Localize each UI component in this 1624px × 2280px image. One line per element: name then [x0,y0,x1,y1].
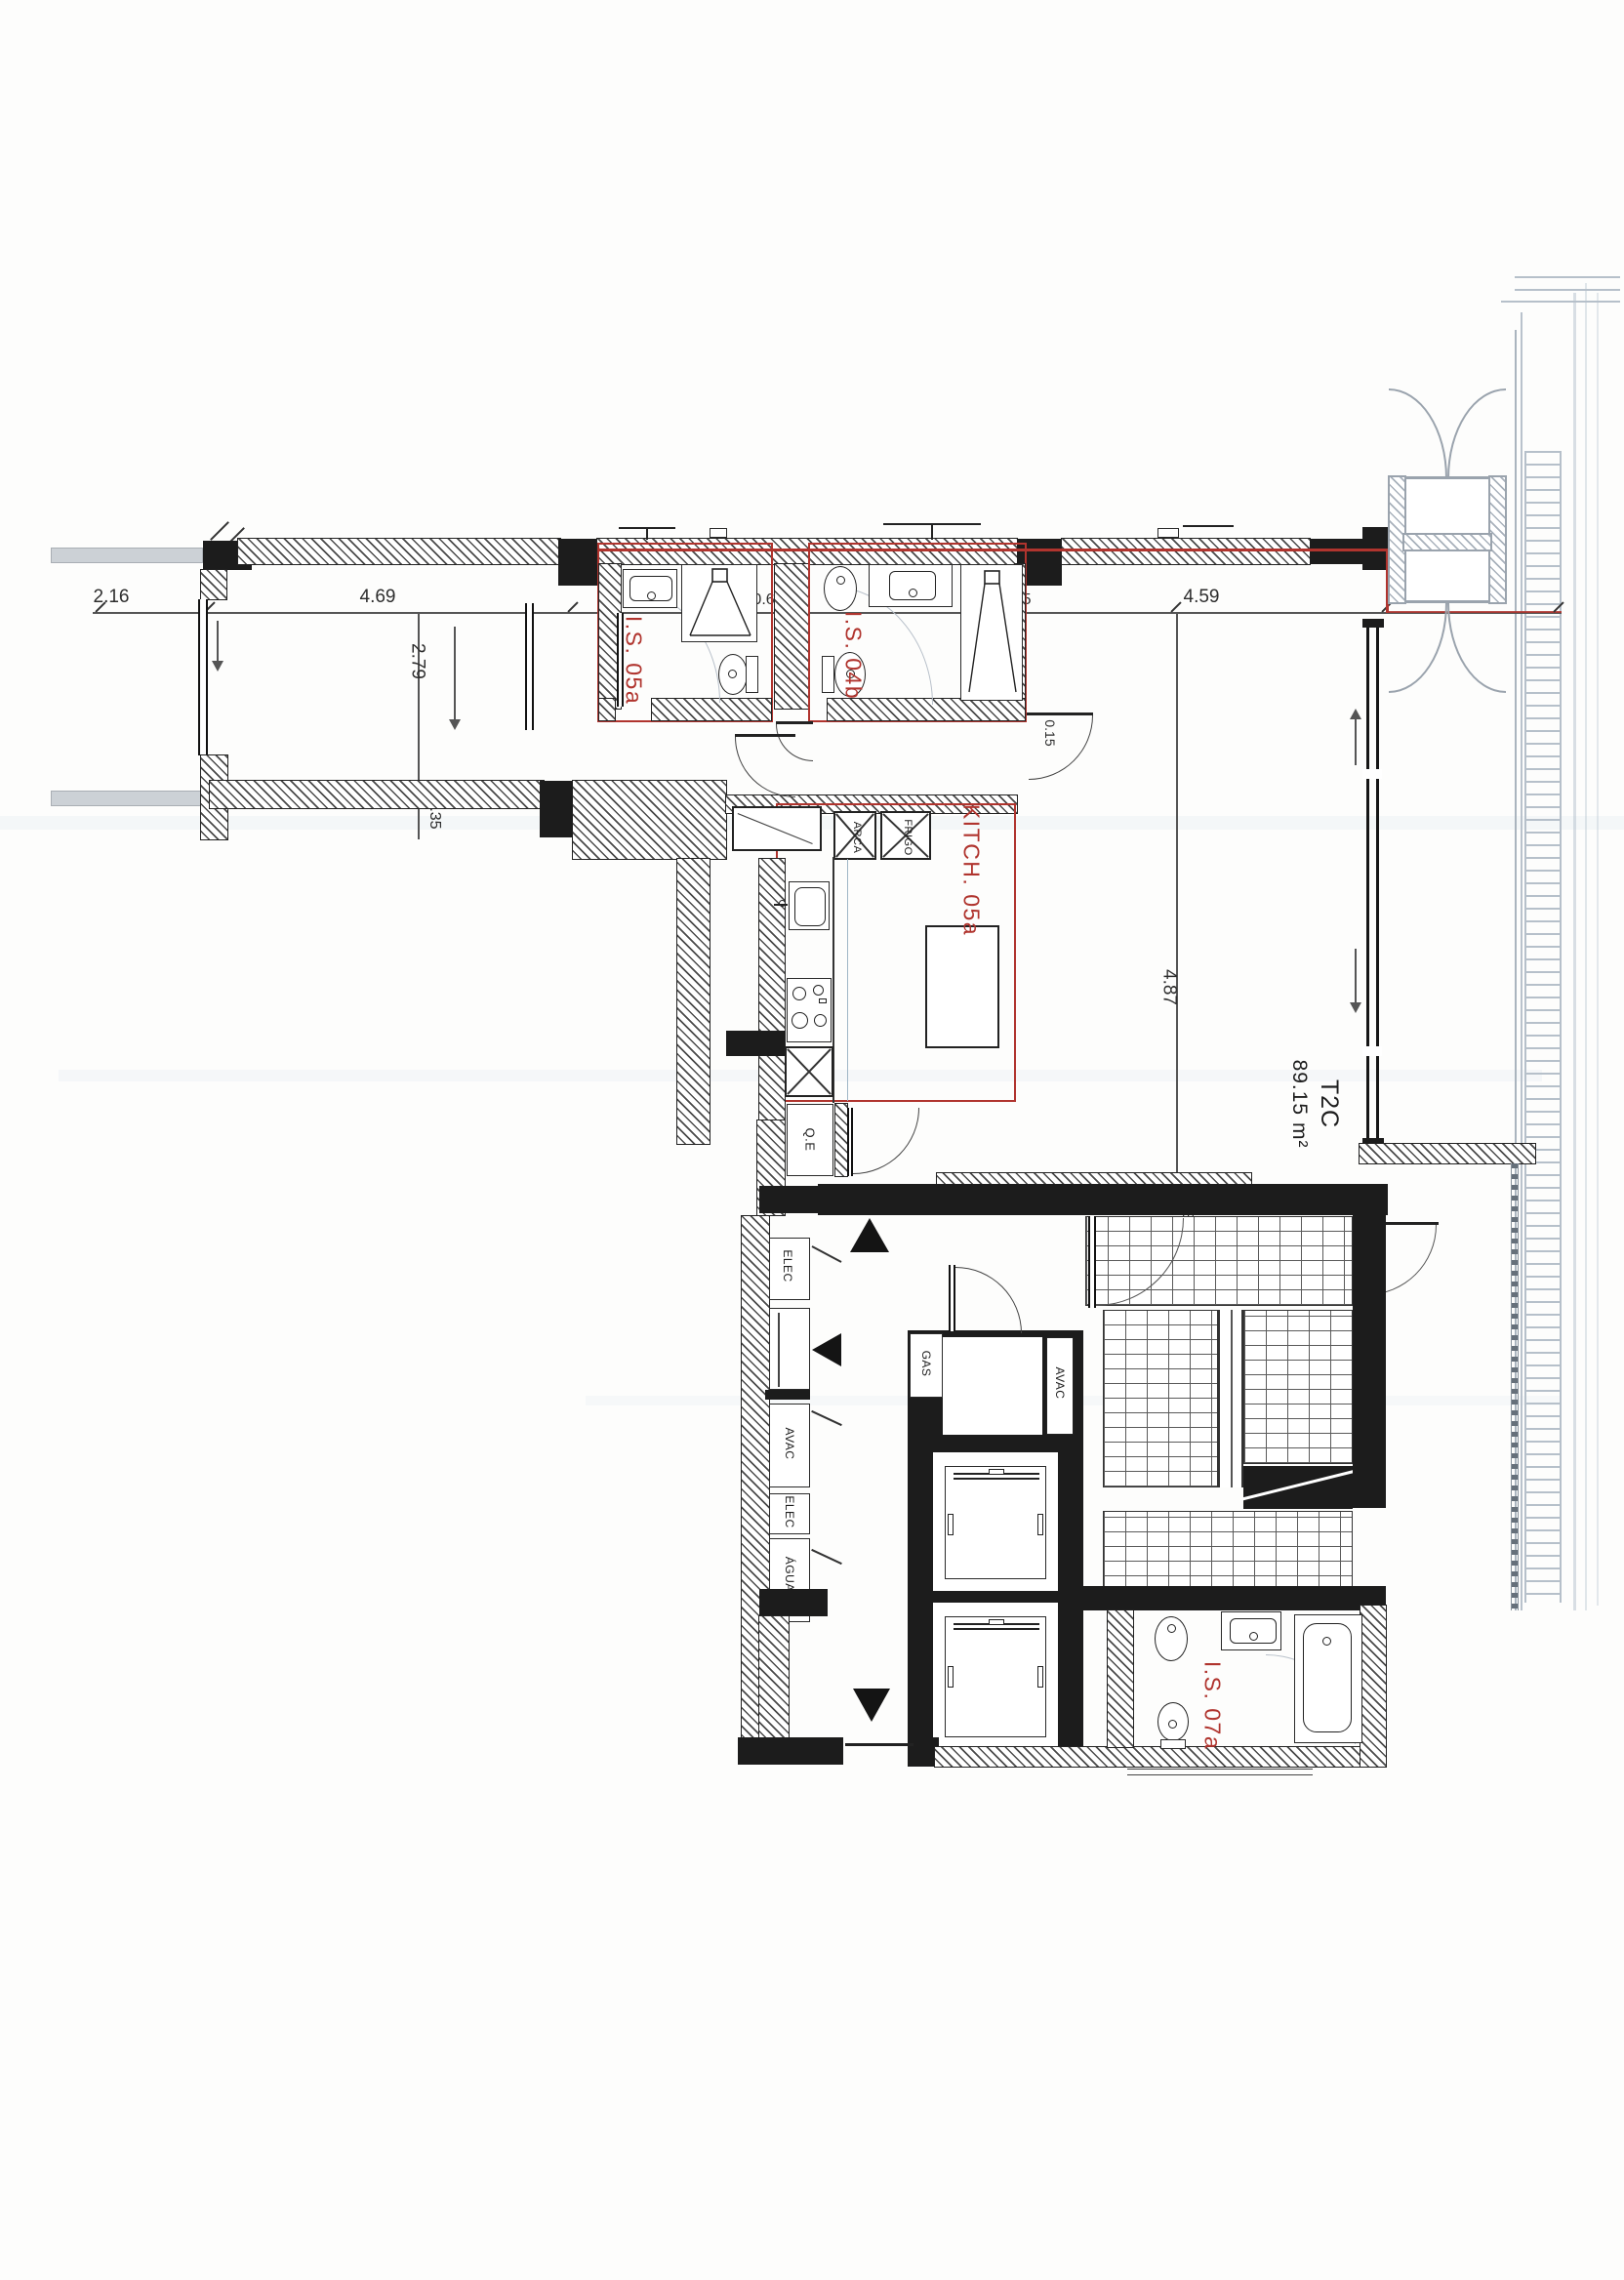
toilet-cistern [1160,1739,1186,1749]
unit-type: T2C [1314,1040,1346,1167]
arrowhead-icon [1350,1002,1361,1013]
washbasin [869,564,953,607]
wall-segment [759,1186,820,1213]
toilet-drain [728,670,737,678]
wall-segment [1310,539,1364,564]
washbasin [623,569,677,608]
scan-streak [1597,293,1599,1606]
toilet-cistern [746,656,758,693]
unit-label: T2C 89.15 m² [1284,1040,1345,1167]
elevator-car-2 [945,1616,1046,1737]
lift-rail [948,1514,954,1535]
wall-hatched [677,859,710,1144]
double-door-arc [1389,603,1447,693]
balcony-rail [51,548,203,563]
handrail-diagonal [1240,1469,1357,1500]
wall-segment [1083,1586,1386,1610]
cabinet-diagonal [734,808,820,849]
basin [794,887,826,926]
appliance-label: FRIGO [902,812,913,863]
faucet-arm [774,904,788,906]
shaft-label-gas: GAS [919,1340,933,1387]
window-west [198,599,208,755]
stair-flight [1103,1310,1218,1487]
lift-rail [1037,1666,1043,1688]
scan-line [1515,289,1620,291]
entrance-door-leaf [1088,1216,1096,1308]
hall-closet [769,1308,810,1390]
room-label-is04b: I.S. 04b [840,601,867,711]
room-label-is05a: I.S. 05a [621,606,647,715]
arrowhead-icon [212,661,223,672]
wall-segment [540,781,573,837]
lift-rail [1037,1514,1043,1535]
wall-segment [738,1737,843,1765]
elevator-car-1 [945,1466,1046,1579]
rail-line [1521,312,1522,1610]
toilet-drain [1168,1720,1177,1729]
unit-area: 89.15 m² [1286,1040,1313,1167]
lift-door-center [989,1469,1004,1475]
shaft-door-flap [811,1410,842,1426]
wall-hatched [201,570,226,599]
wall-hatched [835,1104,847,1176]
shaft-label-elec: ELEC [781,1241,794,1291]
window-gap [1362,1046,1382,1056]
wall-segment [759,1589,828,1616]
faucet-icon [909,589,917,597]
kitchen-lowboard [732,806,822,851]
wall-segment [765,1390,810,1400]
kitchen-sink [789,881,830,930]
wall-hatched [1360,1144,1535,1163]
appliance-label: ARCA [851,814,863,861]
shaft-label-avac: AVAC [1053,1356,1067,1410]
double-door-arc [1447,603,1506,693]
wall-segment [726,1031,785,1056]
door-swing-arc [735,737,795,797]
toilet-cistern [822,656,834,693]
wall-hatched [759,1616,789,1739]
window-swing-arrow [1355,718,1357,765]
wall-hatched [1062,539,1310,564]
shower [681,564,757,642]
arrowhead-icon [449,719,461,730]
exit-door-leaf [845,1743,913,1746]
railing-ladder-strip [1524,451,1562,1603]
burner-icon [814,1014,827,1027]
toilet [718,646,761,703]
double-door-arc [1389,388,1447,478]
bidet [1155,1616,1188,1661]
dim-label: 4.69 [344,588,412,606]
burner-icon [792,1012,808,1029]
door-swing-arc [955,1267,1022,1333]
shaft-door-flap [812,1245,842,1263]
door-swing-arc [853,1108,919,1174]
door-direction-arrow [454,627,456,720]
burner-icon [792,987,806,1000]
shower [960,564,1023,701]
lift-door-line [954,1478,1039,1480]
handrail-line [1231,1310,1233,1487]
door-sill [1127,1769,1313,1775]
floor-plan-sheet: 2.16 4.69 2.40 0.62 2.80 0.15 4.59 2.16 … [0,0,1624,2280]
door-swing-arc [1029,715,1093,780]
wall-hatched-gray [1490,477,1505,602]
boundary-chain-line [1511,1163,1519,1610]
wall-hatched [775,564,808,709]
dim-label: 4.59 [1169,588,1234,606]
wall-hatched [937,1173,1251,1184]
wall-hatched [238,539,560,564]
wall-hatched [599,699,615,720]
bidet-bowl [1155,1616,1188,1661]
window-swing-arrow [1355,949,1357,1003]
double-door-arc [1447,388,1506,478]
wall-segment [1353,1213,1386,1508]
shaft-label-elec2: ELEC [783,1486,796,1538]
window-east [1366,627,1369,1146]
washbasin [1221,1611,1281,1650]
dishwasher [785,1046,833,1097]
direction-arrow-left [812,1333,841,1366]
dimension-line [1176,613,1178,1185]
shaft-label-qe: Q.E [803,1117,818,1163]
lift-door-line [954,1628,1039,1630]
appliance-frigo: FRIGO [880,811,931,860]
closet-line [778,1313,780,1387]
shower-funnel-icon [682,565,758,643]
lift-rail [948,1666,954,1688]
towel-rail-stub [646,527,648,540]
toilet [1156,1702,1191,1751]
counter-centerline [847,859,848,1101]
dim-label: 4.87 [1160,957,1179,1019]
shower-funnel-icon [961,565,1024,702]
bidet-faucet [836,576,845,585]
cooktop [787,978,832,1042]
wall-hatched [573,781,726,859]
faucet-icon [647,591,656,600]
wall-hatched [1108,1610,1133,1747]
direction-arrow-down [853,1689,890,1722]
bathtub [1294,1614,1362,1743]
bedroom-door-leaf [525,603,534,730]
wall-hatched [210,781,544,808]
stair-divider [1218,1310,1243,1487]
window-gap [1362,769,1382,779]
window-east [1376,627,1379,1146]
dim-label: 2.79 [409,632,427,691]
elevator-lobby [943,1337,1042,1435]
stair-flight [1243,1310,1353,1464]
x-brace-icon [787,1048,832,1095]
room-label-kitchen: KITCH. 05a [958,797,985,944]
door-leaf [949,1265,955,1331]
scan-streak [1585,283,1587,1610]
wall-mark [210,521,229,541]
wall-segment [558,539,597,586]
wall-hatched-gray [1390,477,1404,602]
direction-arrow-up [850,1218,889,1252]
wall-hatched-gray [1404,535,1490,550]
dim-label: 2.16 [84,588,139,606]
appliance-arca: ARCA [833,811,876,860]
wall-fitting [710,528,727,538]
tub-drain [1322,1637,1331,1646]
faucet-icon [1249,1632,1258,1641]
towel-rail [1183,525,1234,527]
wall-fitting [1157,528,1179,538]
cooktop-knob [819,998,827,1003]
kitchen-island [925,925,999,1048]
bidet-faucet [1167,1624,1176,1633]
stair-mass [1243,1466,1353,1509]
shaft-door-flap [811,1549,842,1565]
towel-rail-stub [931,523,933,540]
wall-segment [818,1184,1388,1215]
room-label-is07a: I.S. 07a [1199,1651,1226,1761]
arrowhead-icon [1350,709,1361,719]
balcony-rail [51,791,203,806]
window-sill [1362,619,1384,628]
dim-tick [567,601,578,612]
lift-door-center [989,1619,1004,1625]
scan-line [1501,301,1620,303]
scan-streak [1573,293,1576,1610]
window-swing-arrow [217,621,219,662]
shaft-label-avac2: AVAC [783,1417,796,1470]
scan-line [1515,276,1620,278]
burner-icon [813,985,824,996]
wall-hatched [1360,1606,1386,1767]
